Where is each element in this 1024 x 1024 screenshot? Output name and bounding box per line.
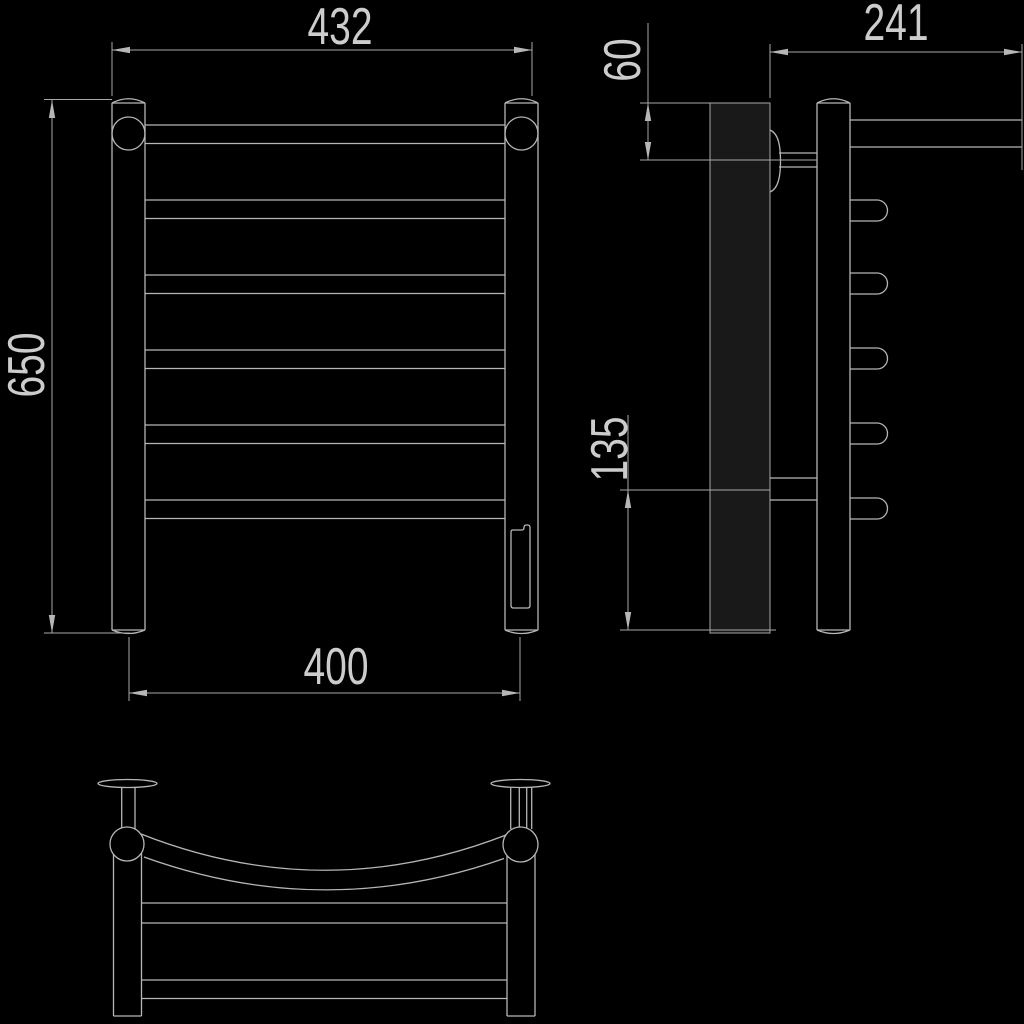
right-post-plan: [507, 848, 535, 1016]
escutcheon-plate: [98, 780, 157, 788]
arrowhead: [625, 490, 631, 508]
arrowhead: [49, 100, 55, 118]
arrowhead: [1004, 49, 1022, 55]
towel-bar: [145, 500, 505, 519]
left-post-plan: [114, 848, 142, 1016]
mounting-bracket-circle-left: [112, 117, 145, 150]
dimension-400: 400: [129, 636, 520, 701]
dimension-label-400: 400: [303, 636, 368, 695]
escutcheon-plate: [491, 780, 550, 788]
side-view: 241 60 135: [579, 0, 1022, 634]
towel-bars: [145, 125, 505, 519]
right-post: [505, 99, 538, 634]
bar-hook: [850, 200, 888, 221]
dimension-label-241: 241: [863, 0, 928, 51]
dimension-label-60: 60: [592, 38, 651, 81]
towel-bar: [145, 350, 505, 369]
arrowhead: [514, 47, 532, 53]
towel-bar: [145, 425, 505, 444]
towel-rail-technical-drawing: 432 650 400: [0, 0, 1024, 1024]
dimension-label-135: 135: [579, 416, 638, 481]
arrowhead: [112, 47, 130, 53]
arrowhead: [129, 690, 147, 696]
dimension-60: 60: [592, 23, 817, 160]
towel-bar: [145, 200, 505, 219]
towel-bar: [145, 125, 505, 144]
towel-bar: [145, 275, 505, 294]
left-bracket-plan: [98, 780, 157, 830]
arrowhead: [770, 49, 788, 55]
bracket-dome: [770, 130, 781, 192]
power-switch-box: [511, 525, 530, 608]
dimension-650: 650: [0, 100, 130, 634]
arrowhead: [625, 612, 631, 630]
bar-hook: [850, 273, 888, 294]
front-view: 432 650 400: [0, 0, 538, 701]
bottom-bracket: [770, 478, 817, 500]
wall-plate: [710, 103, 770, 633]
dimension-label-432: 432: [307, 0, 372, 55]
arrowhead: [49, 615, 55, 633]
dimension-241: 241: [770, 0, 1022, 170]
post-circle-right: [503, 827, 538, 862]
right-bracket-plan: [491, 780, 550, 830]
arrowhead: [502, 690, 520, 696]
arrowhead: [645, 142, 651, 160]
side-post: [817, 99, 850, 634]
dimension-432: 432: [112, 0, 532, 96]
straight-bars-plan: [142, 903, 508, 999]
bottom-view: [98, 780, 550, 1017]
bar-end-hooks: [850, 200, 888, 519]
left-post: [112, 99, 145, 634]
bar-hook: [850, 348, 888, 369]
arrowhead: [645, 103, 651, 121]
top-bar-side-profile: [850, 120, 1022, 147]
dimension-label-650: 650: [0, 332, 55, 397]
top-bracket: [770, 130, 817, 192]
curved-bar-plan: [141, 834, 506, 890]
post-circle-left: [110, 827, 144, 861]
mounting-bracket-circle-right: [505, 117, 538, 150]
bar-hook: [850, 423, 888, 444]
bar-hook: [850, 498, 888, 519]
